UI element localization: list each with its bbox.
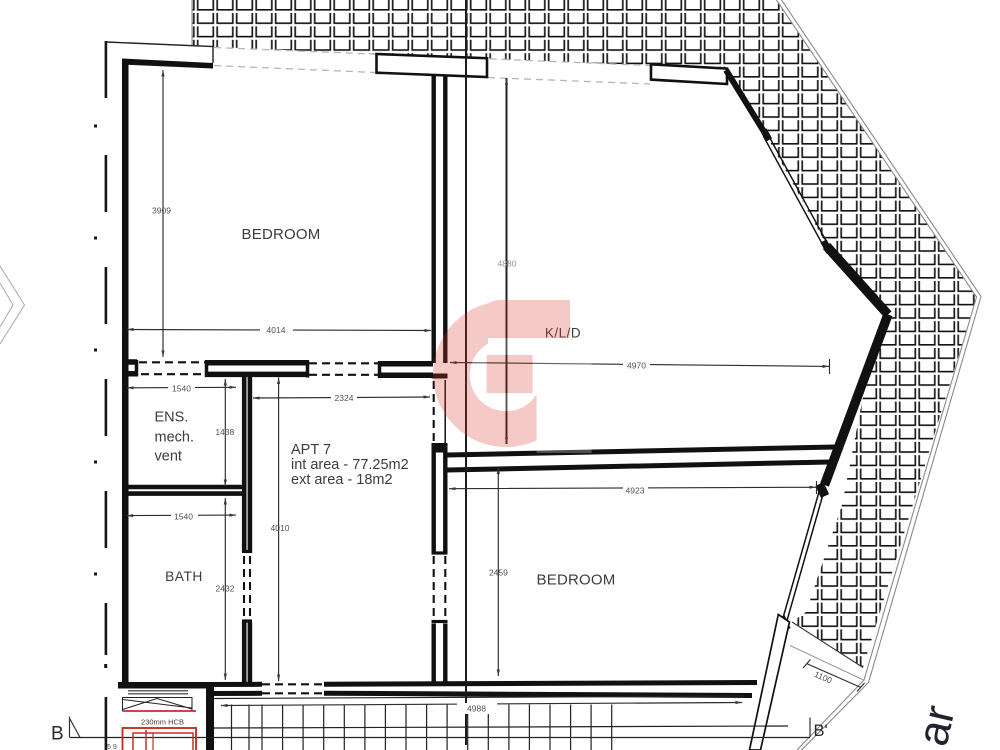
svg-text:mech.: mech. [155,430,195,446]
svg-text:2324: 2324 [335,393,354,403]
svg-text:4880: 4880 [498,259,517,269]
svg-text:2459: 2459 [489,568,508,578]
svg-text:4014: 4014 [267,325,286,335]
svg-text:BATH: BATH [165,569,203,584]
svg-text:230mm HCB: 230mm HCB [141,718,184,727]
svg-text:BEDROOM: BEDROOM [537,572,616,589]
svg-text:4010: 4010 [271,523,290,533]
svg-text:BEDROOM: BEDROOM [242,226,321,243]
svg-text:B': B' [814,722,828,740]
svg-text:5 9: 5 9 [107,744,117,750]
svg-text:3909: 3909 [152,206,171,216]
svg-text:4923: 4923 [626,485,645,495]
svg-text:1540: 1540 [174,511,193,521]
svg-text:APT 7: APT 7 [291,442,331,458]
svg-text:int area - 77.25m2: int area - 77.25m2 [291,457,409,473]
svg-text:1438: 1438 [215,427,234,437]
svg-text:1540: 1540 [172,383,191,393]
svg-text:4988: 4988 [467,704,486,714]
svg-text:ext area - 18m2: ext area - 18m2 [291,472,393,488]
svg-text:B: B [51,724,64,745]
svg-text:vent: vent [155,449,182,465]
svg-text:ENS.: ENS. [155,410,189,426]
svg-text:4970: 4970 [627,361,646,371]
svg-text:2432: 2432 [216,584,235,594]
